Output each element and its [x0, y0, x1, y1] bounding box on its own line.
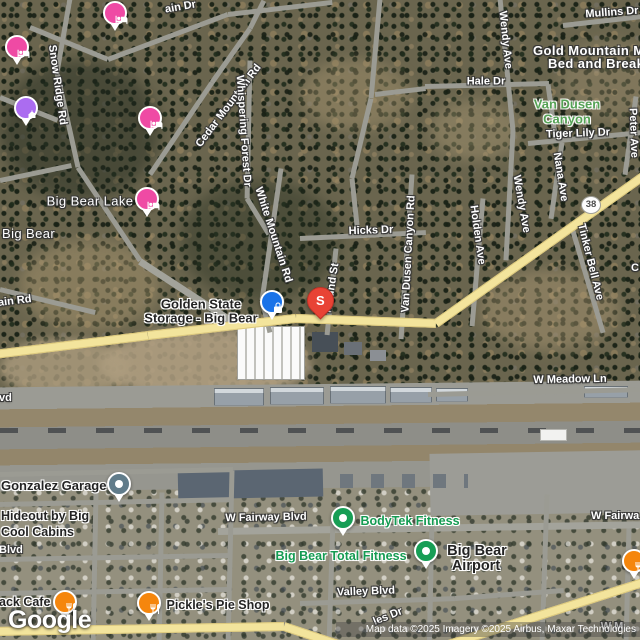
- terrain-patch: [0, 60, 160, 200]
- hangar: [214, 388, 264, 406]
- lodging-marker[interactable]: [5, 35, 29, 67]
- terrain-patch: [430, 100, 520, 160]
- pin-s-label: S: [316, 294, 325, 307]
- auto-garage-marker[interactable]: [107, 472, 131, 504]
- lodging-marker[interactable]: [135, 187, 159, 219]
- midfield-building: [540, 429, 567, 441]
- road-label: W Meadow Ln: [533, 374, 607, 386]
- restaurant-marker[interactable]: [137, 591, 161, 623]
- poi-label-golden-state-storage[interactable]: Golden State: [161, 298, 241, 311]
- lodging-marker[interactable]: [103, 1, 127, 33]
- hangar: [270, 387, 324, 405]
- poi-label-big-bear-total-fitness[interactable]: Big Bear Total Fitness: [275, 550, 406, 563]
- route-38-shield: 38: [581, 196, 601, 214]
- attraction-marker[interactable]: [14, 96, 38, 128]
- storage-marker[interactable]: [260, 290, 284, 322]
- storage-facility-building: [237, 326, 305, 380]
- road-label: Peter Ave: [627, 108, 640, 158]
- road-label: W Fairway Blvd: [225, 512, 306, 524]
- terrain-patch: [300, 60, 410, 130]
- shed: [312, 332, 338, 352]
- map-attribution: Map data ©2025 Imagery ©2025 Airbus, Max…: [336, 622, 640, 637]
- road-label: Hicks Dr: [349, 225, 394, 238]
- nature-label-van-dusen-canyon: Canyon: [543, 113, 591, 126]
- road-label: Tiger Lily Dr: [546, 127, 610, 140]
- large-roof-building: [178, 468, 324, 499]
- hangar: [390, 387, 432, 403]
- poi-label-pickles-pie-shop[interactable]: Pickle's Pie Shop: [166, 599, 269, 612]
- poi-label-hideout-cabins[interactable]: Cool Cabins: [1, 526, 74, 539]
- poi-label-big-bear-airport[interactable]: Airport: [452, 559, 500, 574]
- road-label: W Fairwa: [591, 511, 639, 522]
- poi-label-hideout-cabins[interactable]: Hideout by Big: [1, 510, 89, 523]
- fitness-marker[interactable]: [414, 539, 438, 571]
- poi-label-gonzalez-garage[interactable]: Gonzalez Garage: [1, 479, 106, 492]
- nature-label-van-dusen-canyon: Van Dusen: [534, 98, 600, 111]
- poi-label-golden-state-storage[interactable]: Storage - Big Bear: [144, 312, 257, 325]
- map-canvas[interactable]: ain Dr Mullins Dr Snow Ridge Rd Cedar Mo…: [0, 0, 640, 640]
- restaurant-marker[interactable]: [622, 549, 640, 581]
- road-label: Blvd: [0, 545, 23, 556]
- road-label: C: [631, 263, 639, 274]
- road-label: vd: [0, 393, 12, 404]
- road-label: Valley Blvd: [337, 585, 395, 598]
- city-label-big-bear: Big Bear: [2, 227, 55, 240]
- dot-icon: [422, 547, 430, 555]
- google-logo[interactable]: Google: [8, 608, 91, 633]
- shed: [344, 342, 362, 355]
- shed: [370, 350, 386, 361]
- city-label-big-bear-lake: Big Bear Lake: [47, 195, 134, 208]
- dot-icon: [115, 480, 123, 488]
- lodging-marker[interactable]: [138, 106, 162, 138]
- poi-label-gold-mountain[interactable]: Bed and Break: [548, 57, 640, 70]
- dot-icon: [339, 514, 347, 522]
- road-label: Hale Dr: [467, 77, 506, 88]
- poi-label-big-bear-airport[interactable]: Big Bear: [447, 544, 507, 559]
- poi-label-bodytek-fitness[interactable]: BodyTek Fitness: [360, 515, 459, 528]
- hangar: [330, 386, 386, 404]
- fitness-marker[interactable]: [331, 506, 355, 538]
